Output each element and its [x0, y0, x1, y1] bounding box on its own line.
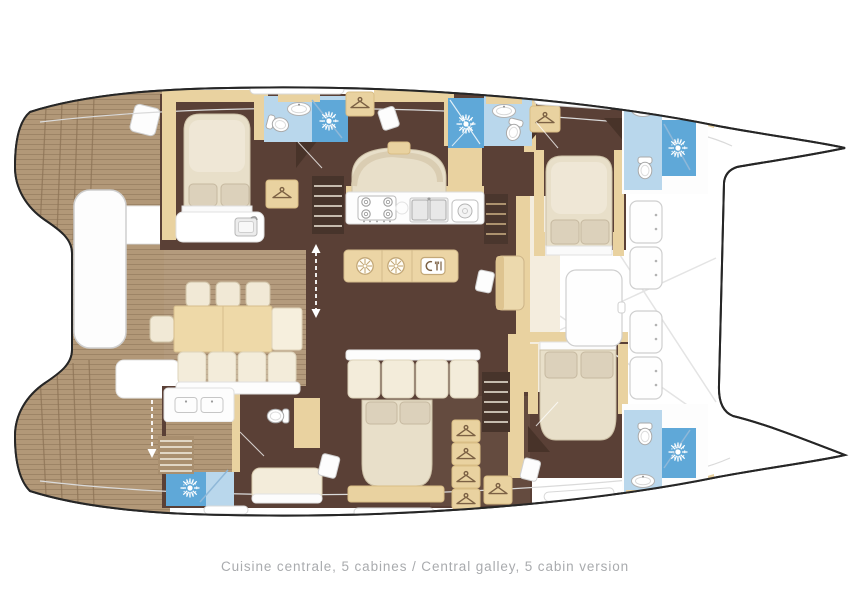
toilet-icon: [267, 409, 289, 423]
port-mid-bathroom: [448, 96, 532, 148]
bed-footboard: [348, 486, 444, 502]
vanity-sink-icon: [201, 398, 223, 413]
deck-locker-icon: [630, 311, 662, 353]
galley-island: [344, 250, 458, 282]
dining-chair: [186, 282, 210, 307]
bed-pillow: [400, 402, 430, 424]
starboard-aft-stairs: [158, 436, 194, 474]
bed-pillow: [581, 352, 613, 378]
cabin-bench: [252, 468, 322, 503]
bed-pillow: [366, 402, 397, 424]
wardrobe-column: [452, 420, 480, 509]
wardrobe: [346, 92, 374, 116]
oven: [452, 200, 478, 222]
shower-rosette-icon: [320, 112, 339, 131]
dining-chair: [216, 282, 240, 307]
deck-locker-icon: [630, 247, 662, 289]
bed-pillow: [545, 352, 577, 378]
aft-facing-sofa: [346, 350, 480, 398]
galley-counter: [346, 192, 484, 224]
washbasin-icon: [632, 475, 655, 488]
port-aft-stairs: [312, 176, 344, 234]
washbasin-icon: [288, 103, 311, 116]
catamaran-floorplan: Cuisine centrale, 5 cabines / Central ga…: [0, 0, 850, 601]
cutlery-icon: [421, 258, 445, 275]
shower-rosette-icon: [669, 443, 688, 462]
interior: [14, 85, 732, 517]
deck-locker-icon: [630, 357, 662, 399]
fridge-icon: [388, 258, 404, 274]
port-forward-bathroom: [622, 94, 708, 194]
port-aft-bathroom: [264, 94, 348, 142]
dining-chair: [246, 282, 270, 307]
nav-seat: [496, 256, 524, 310]
galley-floor: [306, 222, 524, 394]
wardrobe: [266, 180, 298, 208]
bed-pillow: [551, 220, 579, 244]
wardrobe: [530, 106, 560, 132]
nightstand: [613, 232, 624, 256]
dining-chair: [150, 316, 174, 342]
shower-rosette-icon: [181, 479, 200, 498]
port-forward-stairs: [484, 194, 508, 244]
hatch-handle: [618, 302, 625, 313]
bedside-table: [388, 142, 410, 154]
starboard-forward-stairs: [482, 372, 510, 432]
fridge-icon: [357, 258, 373, 274]
toilet-icon: [638, 157, 652, 179]
stove: [358, 196, 396, 220]
floorplan-drawing: Cuisine centrale, 5 cabines / Central ga…: [0, 0, 850, 601]
wardrobe: [484, 476, 512, 504]
vanity-sink-icon: [175, 398, 197, 413]
toilet-icon: [638, 423, 652, 445]
bed-pillow: [221, 184, 249, 206]
deck-locker-icon: [630, 201, 662, 243]
caption: Cuisine centrale, 5 cabines / Central ga…: [221, 559, 629, 574]
forward-hatch: [566, 270, 622, 346]
washbasin-icon: [493, 105, 516, 118]
table-leaf: [272, 308, 302, 350]
nightstand: [534, 232, 545, 256]
shower-rosette-icon: [669, 139, 688, 158]
aft-swim-platform: [74, 190, 126, 348]
double-sink-icon: [410, 197, 448, 222]
bed-pillow: [581, 220, 609, 244]
bed-pillow: [189, 184, 217, 206]
faucet-sink-icon: [235, 217, 257, 236]
